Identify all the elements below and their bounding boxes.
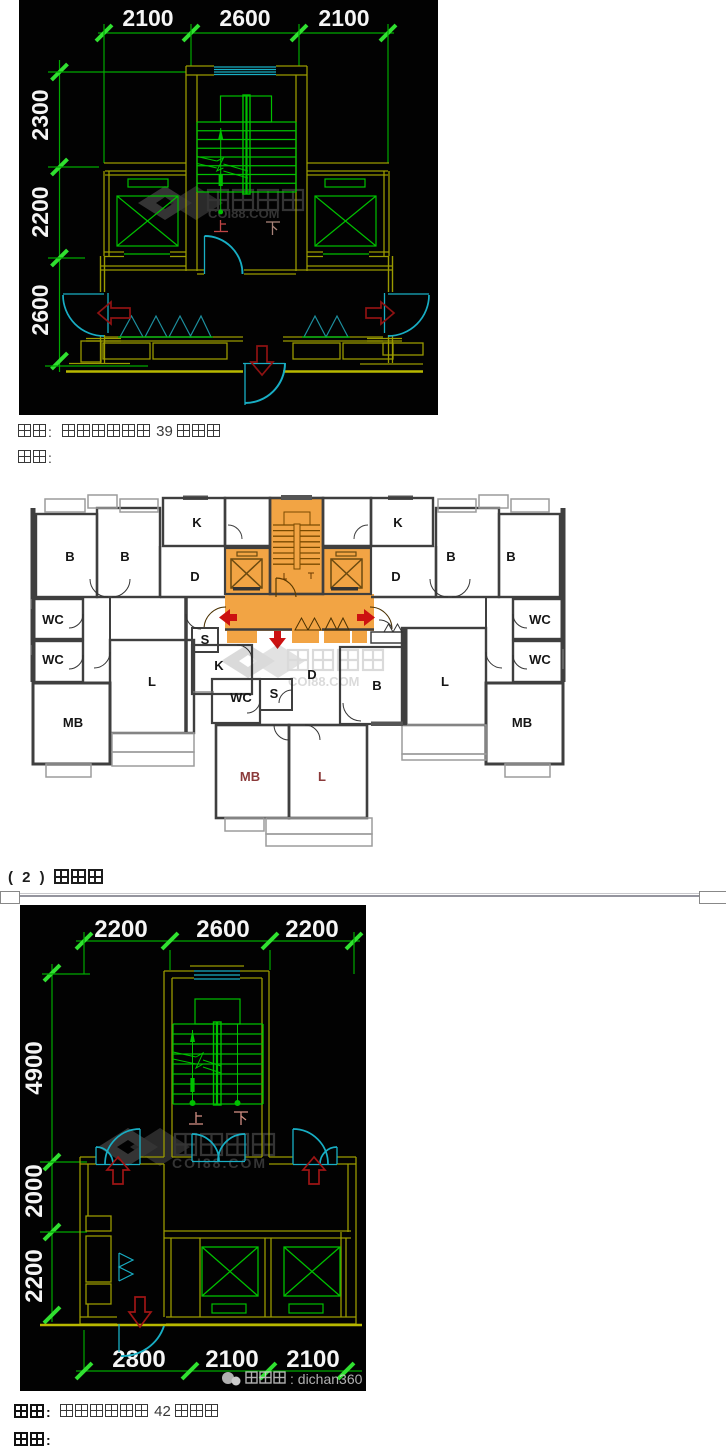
svg-text:WC: WC [42,612,64,627]
svg-text:2200: 2200 [285,916,338,943]
svg-text:WC: WC [529,612,551,627]
svg-text:WC: WC [42,652,64,667]
svg-text:2100: 2100 [318,5,369,31]
svg-text:L: L [148,674,156,689]
svg-text:2600: 2600 [27,284,53,335]
svg-text:MB: MB [512,715,532,730]
svg-text:2100: 2100 [122,5,173,31]
svg-text:COI88.COM: COI88.COM [208,206,280,221]
svg-text:2600: 2600 [196,916,249,943]
svg-text:2100: 2100 [205,1346,258,1373]
svg-text:B: B [65,549,74,564]
svg-text:S: S [201,632,210,647]
svg-text:B: B [372,678,381,693]
svg-text:K: K [192,515,202,530]
svg-text:2200: 2200 [94,916,147,943]
svg-text:COI88.COM: COI88.COM [288,674,360,689]
svg-text:2600: 2600 [219,5,270,31]
svg-text:MB: MB [240,769,260,784]
svg-text:D: D [391,569,400,584]
svg-text:: dichan360: : dichan360 [290,1371,363,1387]
svg-text:D: D [190,569,199,584]
svg-text:K: K [393,515,403,530]
svg-text:2300: 2300 [27,89,53,140]
svg-text:WC: WC [230,690,252,705]
svg-text:MB: MB [63,715,83,730]
svg-text:S: S [270,686,279,701]
svg-text:L: L [318,769,326,784]
svg-text:2100: 2100 [286,1346,339,1373]
svg-text:2200: 2200 [21,1249,48,1302]
svg-text:2000: 2000 [21,1164,48,1217]
svg-text:2800: 2800 [112,1346,165,1373]
svg-text:WC: WC [529,652,551,667]
svg-text:2200: 2200 [27,186,53,237]
svg-text:L: L [441,674,449,689]
svg-text:4900: 4900 [21,1041,48,1094]
svg-text:B: B [446,549,455,564]
svg-text:B: B [506,549,515,564]
svg-text:B: B [120,549,129,564]
